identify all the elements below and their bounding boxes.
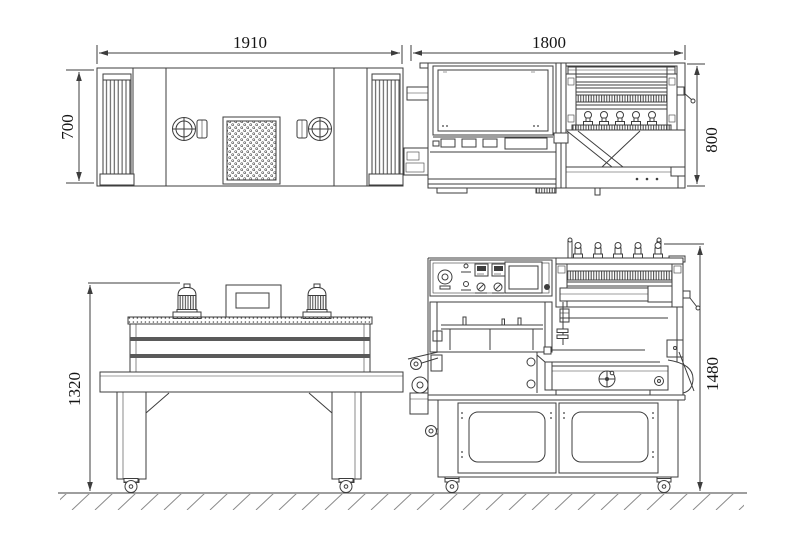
temperature-controller <box>492 264 505 276</box>
conveyor-table <box>100 372 403 392</box>
film-spool-icon <box>594 243 603 259</box>
caster-wheel-icon <box>339 479 353 493</box>
caster-wheel-icon <box>124 479 138 493</box>
dim-label-sealer-height: 1480 <box>703 357 722 391</box>
dim-label-tunnel-width: 1910 <box>233 33 267 52</box>
door-window <box>572 412 648 462</box>
tunnel-exit-curtain <box>369 74 403 185</box>
table-leg <box>117 392 169 479</box>
emergency-button-icon <box>544 284 550 290</box>
cabinet-door <box>559 403 658 473</box>
dim-label-tunnel-depth: 700 <box>58 114 77 140</box>
film-spool-icon <box>634 243 643 259</box>
dimension-sealer-width: 1800 <box>411 33 685 61</box>
fan-knob-icon <box>173 118 196 141</box>
blower-motor-icon <box>303 284 331 319</box>
fan-knob-icon <box>309 118 332 141</box>
technical-diagram-canvas: 1910 1800 700 800 1320 <box>0 0 800 540</box>
side-knob-icon <box>426 426 439 437</box>
sealing-chamber <box>430 296 552 352</box>
table-leg <box>309 392 361 479</box>
shrink-tunnel-top-view <box>97 68 403 186</box>
caster-wheel-icon <box>657 479 671 493</box>
crank-wheel-icon <box>599 371 615 387</box>
control-panel <box>430 260 552 296</box>
dimension-tunnel-width: 1910 <box>97 33 402 64</box>
door-window <box>469 412 545 462</box>
temperature-controller <box>475 264 488 276</box>
tunnel-control-box <box>226 285 281 317</box>
film-cradle-attachment <box>408 352 438 414</box>
tunnel-top-grille <box>128 317 372 324</box>
ground-hatch <box>60 494 744 510</box>
l-sealer-top-view <box>404 63 695 195</box>
dimension-tunnel-depth: 700 <box>58 70 94 183</box>
dim-label-sealer-depth: 800 <box>702 127 721 153</box>
touch-screen <box>505 262 542 293</box>
blower-motor-icon <box>173 284 201 319</box>
film-spool-icon <box>574 243 583 259</box>
l-sealer-front-view <box>408 238 700 493</box>
film-perforator-assembly <box>556 243 700 323</box>
tunnel-entry-curtain <box>100 74 134 185</box>
cabinet-door <box>458 403 556 473</box>
perforated-vent-panel <box>223 117 280 184</box>
tunnel-chamber <box>130 324 370 372</box>
caster-wheel-icon <box>445 479 459 493</box>
shrink-tunnel-side-view <box>100 284 403 493</box>
ground-line <box>58 493 747 510</box>
power-knob-icon <box>438 270 452 284</box>
machine-dimension-drawing: 1910 1800 700 800 1320 <box>0 0 800 540</box>
dim-label-sealer-width: 1800 <box>532 33 566 52</box>
packing-table-panel <box>433 66 553 135</box>
dimension-sealer-depth: 800 <box>687 64 721 186</box>
film-spool-icon <box>614 243 623 259</box>
film-spool-icon <box>654 243 663 259</box>
dim-label-tunnel-height: 1320 <box>65 372 84 406</box>
cabinet <box>426 400 679 477</box>
